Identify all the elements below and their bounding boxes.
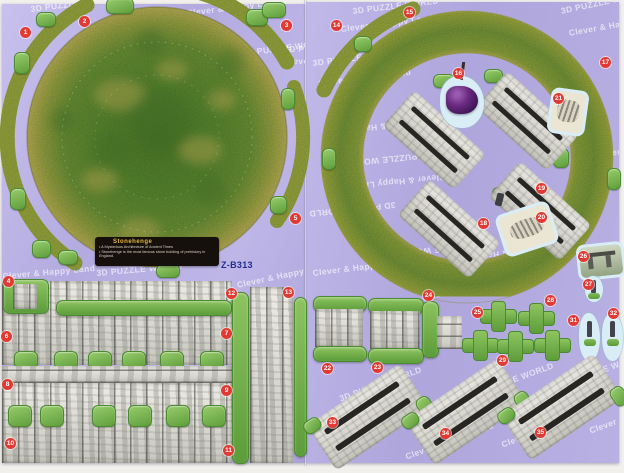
piece-number-badge: 33	[327, 417, 338, 428]
piece-number-badge: 29	[497, 355, 508, 366]
piece-number-badge: 19	[536, 183, 547, 194]
piece-number-badge: 12	[226, 288, 237, 299]
piece-number-badge: 4	[3, 276, 14, 287]
piece-number-badge: 16	[453, 68, 464, 79]
piece-number-badge: 9	[221, 385, 232, 396]
piece-number-badge: 35	[535, 427, 546, 438]
piece-number-badge: 25	[472, 307, 483, 318]
piece-number-badge: 34	[440, 428, 451, 439]
puzzle-sheets-photo: 3D PUZZLE WORLDClever & Happy Land3D PUZ…	[0, 0, 624, 473]
piece-number-badge: 23	[372, 362, 383, 373]
badge-layer: 1234567891011121314151617181920212223242…	[0, 0, 624, 473]
piece-number-badge: 24	[423, 290, 434, 301]
piece-number-badge: 6	[1, 331, 12, 342]
piece-number-badge: 31	[568, 315, 579, 326]
piece-number-badge: 21	[553, 93, 564, 104]
piece-number-badge: 7	[221, 328, 232, 339]
piece-number-badge: 18	[478, 218, 489, 229]
piece-number-badge: 11	[223, 445, 234, 456]
piece-number-badge: 15	[404, 7, 415, 18]
piece-number-badge: 17	[600, 57, 611, 68]
piece-number-badge: 14	[331, 20, 342, 31]
piece-number-badge: 28	[545, 295, 556, 306]
piece-number-badge: 1	[20, 27, 31, 38]
piece-number-badge: 20	[536, 212, 547, 223]
piece-number-badge: 32	[608, 308, 619, 319]
piece-number-badge: 2	[79, 16, 90, 27]
piece-number-badge: 26	[578, 251, 589, 262]
piece-number-badge: 27	[583, 279, 594, 290]
piece-number-badge: 13	[283, 287, 294, 298]
piece-number-badge: 5	[290, 213, 301, 224]
piece-number-badge: 22	[322, 363, 333, 374]
piece-number-badge: 3	[281, 20, 292, 31]
piece-number-badge: 10	[5, 438, 16, 449]
piece-number-badge: 8	[2, 379, 13, 390]
